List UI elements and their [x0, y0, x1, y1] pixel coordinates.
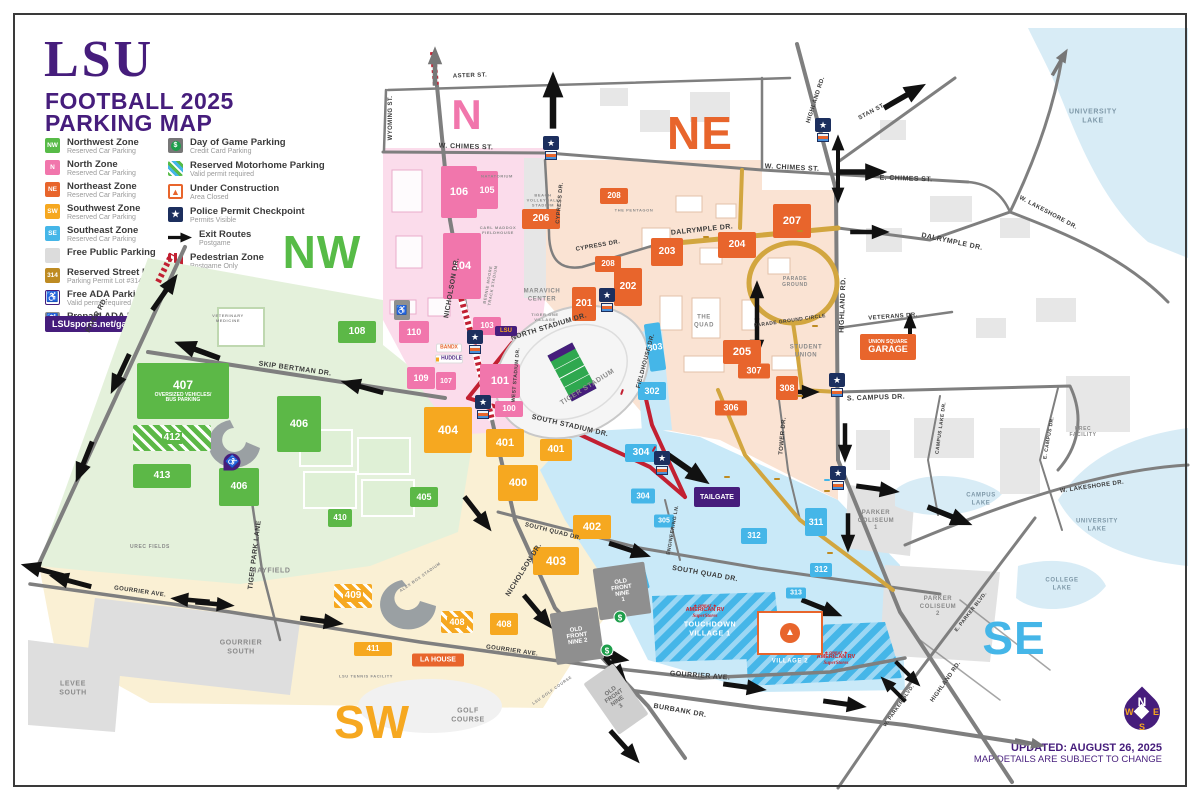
lot-207: 207	[773, 204, 811, 238]
zone-label-N: N	[451, 94, 482, 136]
lot-404: 404	[424, 407, 472, 453]
police-checkpoint-icon: ★	[543, 136, 559, 160]
landmark-label: TOUCHDOWN VILLAGE 1	[684, 621, 736, 639]
lot-312: 312	[741, 528, 767, 544]
street-badge-314	[812, 325, 818, 327]
landmark-label: STUDENT UNION	[790, 345, 823, 360]
lot-205: 205	[723, 340, 761, 364]
street-label: HIGHLAND RD.	[930, 660, 963, 703]
lot-202: 202	[614, 268, 642, 306]
lot-409: 409	[334, 584, 372, 608]
zone-label-NW: NW	[283, 229, 362, 275]
landmark-label: UREC FIELDS	[130, 544, 170, 550]
street-badge-300	[620, 389, 624, 395]
lot-203: 203	[651, 238, 683, 266]
street-label: RIVER RD.	[85, 296, 109, 334]
police-checkpoint-icon: ★	[654, 451, 670, 475]
police-checkpoint-icon: ★	[599, 288, 615, 312]
street-label: ASTER ST.	[453, 72, 487, 79]
landmark-label: CARL MADDOX FIELDHOUSE	[480, 225, 517, 235]
lot-401: 401	[540, 439, 572, 461]
landmark-label: GOURRIER SOUTH	[220, 639, 263, 657]
landmark-label: PARKER COLISEUM 1	[858, 510, 894, 533]
landmark-label: UNIVERSITY LAKE	[1069, 108, 1117, 126]
street-label: CAMPUS LAKE DR.	[934, 402, 947, 455]
lot-408: 408	[441, 611, 473, 633]
lot-408: 408	[490, 613, 518, 635]
police-checkpoint-icon: ★	[829, 373, 845, 397]
landmark-label: THE PENTAGON	[615, 208, 654, 213]
lot-412: 412	[133, 425, 211, 451]
zone-label-SW: SW	[334, 699, 410, 745]
street-badge-314	[824, 490, 830, 492]
street-badge-314	[724, 476, 730, 478]
landmark-label: ALEX BOX STADIUM	[398, 561, 441, 593]
lot-307: 307	[738, 364, 770, 379]
lot-100: 100	[495, 401, 523, 417]
street-label: VETERANS DR.	[868, 312, 918, 321]
great-american-rv-logo: ★ GREAT ★AMERICAN RVSuperStores	[686, 604, 725, 619]
lot-204: 204	[718, 232, 756, 258]
lot-day-of-game: OLD FRONT NINE 3	[583, 663, 648, 734]
ada-parking-pin: ♿	[224, 454, 241, 471]
landmark-label: LSU TENNIS FACILITY	[339, 674, 393, 679]
street-label: TOWER DR.	[778, 417, 787, 455]
lot-206: 206	[522, 209, 560, 229]
landmark-label: TIGER ONE VILLAGE	[531, 312, 558, 322]
street-label: W. LAKESHORE DR.	[1018, 195, 1078, 231]
map-overlay: NWNNESWSE1061051041101091071031011002062…	[0, 0, 1200, 800]
street-label: BURBANK DR.	[653, 703, 707, 719]
lot-311: 311	[805, 508, 827, 536]
lot-day-of-game: OLD FRONT NINE 2	[550, 607, 605, 665]
street-label: GOURRIER AVE.	[114, 585, 167, 598]
landmark-label: THE QUAD	[694, 315, 714, 330]
huddle-logo: HUDDLE	[435, 355, 463, 364]
street-label: CYPRESS DR.	[575, 239, 620, 253]
lot-407: 407OVERSIZED VEHICLES/ BUS PARKING	[137, 363, 229, 419]
street-label: SOUTH QUAD DR.	[672, 565, 739, 583]
lot-403: 403	[533, 547, 579, 575]
zone-label-SE: SE	[982, 615, 1045, 661]
street-label: GOURRIER AVE.	[670, 670, 731, 681]
street-label: W. PARKER BLVD.	[882, 684, 916, 728]
under-construction-icon: ▲	[757, 611, 823, 655]
lsu-gateway-badge: LSU	[495, 326, 517, 336]
landmark-label: PARADE GROUND	[782, 276, 808, 289]
landmark-label: LEVEE SOUTH	[59, 680, 87, 698]
landmark-label: MARAVICH CENTER	[524, 289, 561, 304]
lot-306: 306	[715, 401, 747, 416]
day-of-game-icon: $	[601, 644, 614, 657]
landmark-label: CAMPUS LAKE	[966, 493, 996, 508]
landmark-label: GOLF COURSE	[451, 707, 485, 725]
landmark-label: TIGER STADIUM	[559, 368, 617, 409]
lot-106: 106	[441, 166, 477, 218]
day-of-game-icon: $	[614, 611, 627, 624]
lot-109: 109	[407, 367, 435, 389]
landmark-label: LSU GOLF COURSE	[531, 674, 573, 705]
landmark-label: UNIVERSITY LAKE	[1076, 519, 1118, 534]
street-label: E. CHIMES ST.	[879, 175, 932, 184]
lot-405: 405	[410, 487, 438, 507]
lot-411: 411	[354, 642, 392, 656]
landmark-label: COLLEGE LAKE	[1045, 578, 1078, 593]
union-square-garage-badge: UNION SQUAREGARAGE	[860, 334, 916, 360]
street-badge-314	[827, 552, 833, 554]
tailgate-badge: TAILGATE	[694, 487, 740, 507]
street-label: W. LAKESHORE DR.	[1060, 480, 1125, 495]
lot-107: 107	[436, 372, 456, 390]
lot-304: 304	[631, 489, 655, 504]
lot-410: 410	[328, 509, 352, 527]
street-badge-314	[797, 395, 803, 397]
landmark-label: BERNIE MOORE TRACK STADIUM	[482, 264, 499, 306]
landmark-label: HAYFIELD	[251, 568, 290, 577]
street-label: TIGER PARK LANE	[247, 520, 262, 590]
street-label: W. CHIMES ST.	[765, 163, 820, 173]
lot-110: 110	[399, 321, 429, 343]
lot-400: 400	[498, 465, 538, 501]
lot-313: 313	[786, 588, 806, 599]
landmark-label: BEACH VOLLEYBALL STADIUM	[527, 193, 560, 208]
prepaid-ada-box: ♿	[394, 300, 410, 320]
landmark-label: VETERINARY MEDICINE	[212, 313, 244, 323]
police-checkpoint-icon: ★	[815, 118, 831, 142]
bandx-logo: BANDX	[436, 344, 462, 353]
street-label: SOUTH STADIUM DR.	[531, 414, 609, 439]
parking-map-canvas: NWNNESWSE1061051041101091071031011002062…	[0, 0, 1200, 800]
street-label: HIGHLAND RD.	[839, 277, 848, 333]
street-label: S. CAMPUS DR.	[847, 393, 905, 402]
street-label: W. CHIMES ST.	[439, 143, 494, 152]
street-label: HIGHLAND RD.	[806, 76, 827, 124]
street-label: E. CAMPUS DR.	[1042, 416, 1055, 459]
landmark-label: NATATORIUM	[481, 174, 513, 179]
lot-413: 413	[133, 464, 191, 488]
la-house-badge: LA HOUSE	[412, 654, 464, 667]
lot-401: 401	[486, 429, 524, 457]
street-label: ENGINEERING LN.	[666, 505, 681, 556]
zone-label-NE: NE	[667, 110, 733, 156]
street-badge-314	[797, 230, 803, 232]
lot-406: 406	[277, 396, 321, 452]
street-label: WYOMING ST.	[388, 96, 394, 141]
police-checkpoint-icon: ★	[467, 330, 483, 354]
street-badge-314	[703, 236, 709, 238]
street-label: STAN ST.	[858, 102, 887, 121]
lot-108: 108	[338, 321, 376, 343]
police-checkpoint-icon: ★	[830, 466, 846, 490]
street-badge-314	[774, 478, 780, 480]
landmark-label: UREC FACILITY	[1069, 426, 1096, 439]
police-checkpoint-icon: ★	[475, 395, 491, 419]
lot-208: 208	[600, 188, 628, 204]
street-label: DALRYMPLE DR.	[921, 232, 984, 252]
lot-304: 304	[625, 444, 657, 462]
street-label: SKIP BERTMAN DR.	[258, 360, 332, 377]
landmark-label: PARKER COLISEUM 2	[920, 596, 956, 619]
lot-308: 308	[776, 376, 798, 400]
lot-406: 406	[219, 468, 259, 506]
street-label: GOURRIER AVE.	[486, 644, 539, 657]
lot-312: 312	[810, 563, 832, 577]
